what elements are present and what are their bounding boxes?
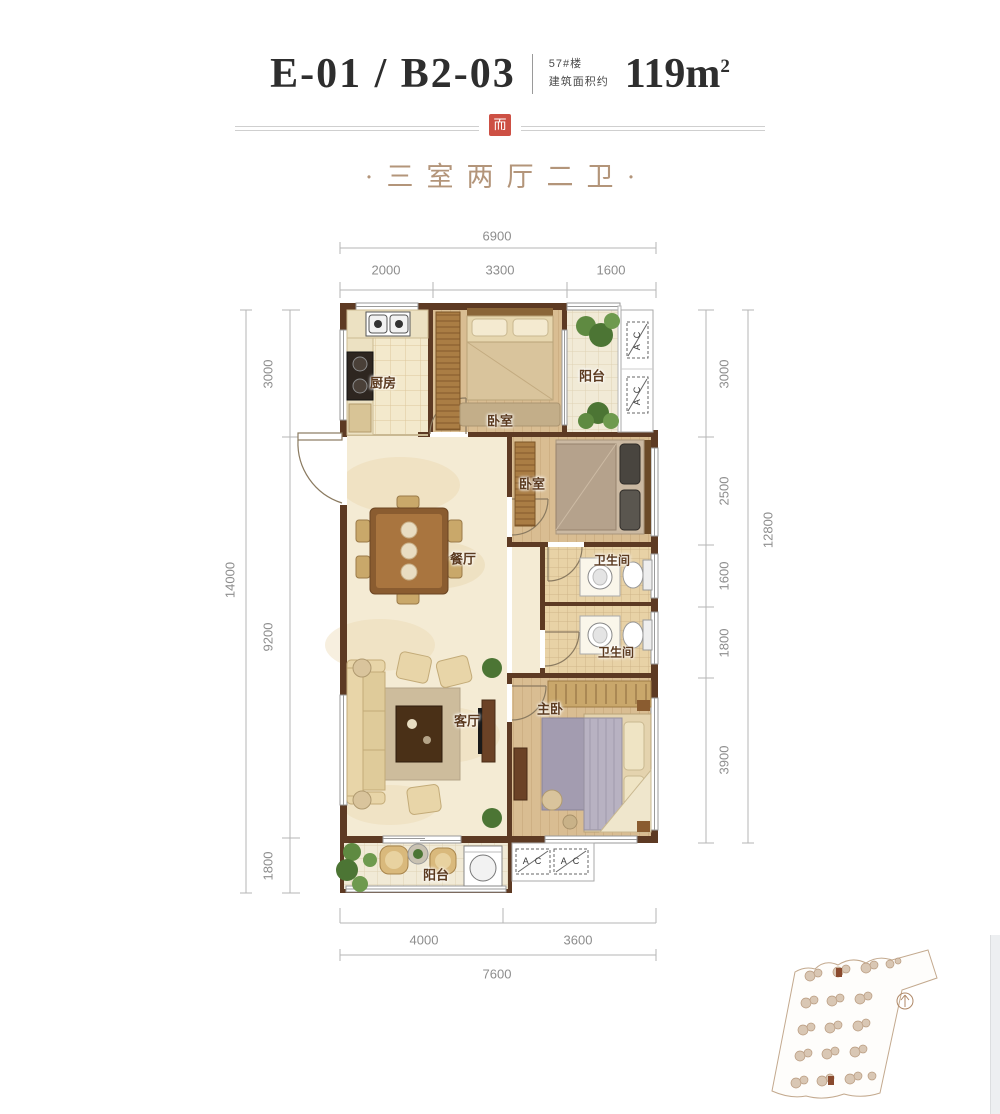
coffee-table-icon: [396, 706, 442, 762]
room-label-bath-upper: 卫生间: [594, 552, 630, 569]
stool-icon: [563, 815, 577, 829]
wardrobe-icon: [436, 312, 460, 430]
dim-right-seg: 3900: [717, 746, 732, 775]
kitchen-left-window: [340, 330, 347, 420]
dim-bottom-total: 7600: [483, 967, 512, 982]
dim-right-seg: 1600: [717, 562, 732, 591]
dim-left-seg: 1800: [261, 852, 276, 881]
armchair-icon: [406, 784, 441, 815]
tv-console-icon: [478, 700, 495, 762]
dim-top-seg: 1600: [597, 263, 626, 278]
highlighted-building: [836, 968, 842, 977]
room-label-bath-lower: 卫生间: [598, 644, 634, 661]
dim-right-total: 12800: [761, 512, 776, 548]
ac-label: A C: [561, 856, 582, 866]
dim-top-total: 6900: [483, 229, 512, 244]
side-table-icon: [353, 659, 371, 677]
plant-icon: [482, 808, 502, 828]
dim-top-seg: 3300: [486, 263, 515, 278]
washing-machine-icon: [464, 846, 502, 886]
balcony-bottom-window: [346, 886, 506, 892]
nightstand-icon: [637, 700, 650, 711]
room-label-balcony-bottom: 阳台: [423, 865, 449, 884]
ac-label: A C: [632, 330, 642, 351]
sofa-icon: [347, 660, 385, 804]
tv-console-icon: [514, 748, 527, 800]
plant-icon: [482, 658, 502, 678]
room-label-bedroom-mid: 卧室: [519, 474, 545, 493]
room-label-living: 客厅: [454, 711, 480, 730]
living-left-window: [340, 695, 347, 805]
corridor-floor: [512, 547, 540, 678]
room-label-master: 主卧: [537, 699, 563, 718]
kitchen-sink-icon: [366, 312, 410, 336]
stool-icon: [542, 790, 562, 810]
floor-plan-canvas: [0, 0, 1000, 1114]
master-right-window: [651, 698, 658, 830]
page-edge-strip: [990, 935, 1000, 1114]
room-label-kitchen: 厨房: [370, 373, 396, 392]
dining-set-icon: [356, 496, 462, 604]
room-label-dining: 餐厅: [450, 549, 476, 568]
dim-left-seg: 9200: [261, 623, 276, 652]
dim-right-seg: 3000: [717, 360, 732, 389]
bed-icon: [584, 714, 651, 832]
balcony-sliding-door: [383, 836, 461, 843]
site-plan: [772, 950, 937, 1098]
dim-bottom-seg: 3600: [564, 933, 593, 948]
bed-icon: [467, 308, 553, 400]
room-label-bedroom-top: 卧室: [487, 411, 513, 430]
ac-label: A C: [632, 385, 642, 406]
dim-left-seg: 3000: [261, 360, 276, 389]
master-bottom-window: [545, 836, 637, 843]
plant-icon: [413, 849, 423, 859]
nightstand-icon: [637, 821, 650, 832]
highlighted-building: [828, 1076, 834, 1085]
bed-icon: [556, 440, 651, 534]
dim-top-seg: 2000: [372, 263, 401, 278]
dim-left-total: 14000: [223, 562, 238, 598]
cabinet-icon: [349, 404, 371, 432]
bedroom-mid-window: [651, 448, 658, 536]
ac-label: A C: [523, 856, 544, 866]
dim-right-seg: 2500: [717, 477, 732, 506]
floorplan-page: E-01 / B2-03 57#楼 建筑面积约 119m2 而 ·三室两厅二卫·: [0, 0, 1000, 1114]
dim-right-seg: 1800: [717, 629, 732, 658]
side-table-icon: [353, 791, 371, 809]
kitchen-top-window: [356, 303, 418, 310]
balcony-top-railing: [567, 303, 620, 310]
room-label-balcony-top: 阳台: [579, 366, 605, 385]
dim-bottom-seg: 4000: [410, 933, 439, 948]
bedroom-balcony-glass: [562, 330, 567, 425]
entry-door: [298, 433, 342, 503]
